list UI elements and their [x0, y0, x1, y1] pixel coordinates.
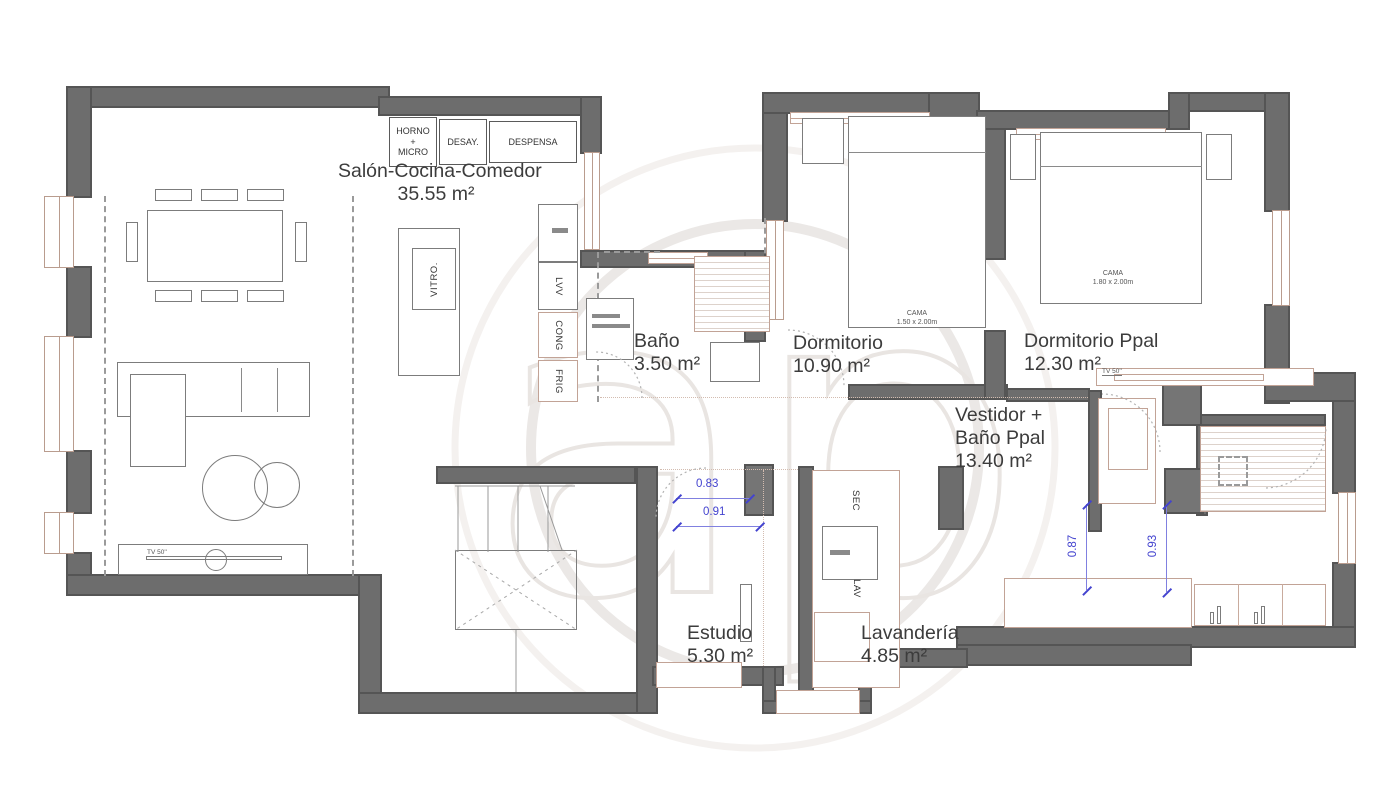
room-label-lavanderia: Lavandería4.85 m²: [861, 622, 959, 668]
window: [44, 336, 74, 452]
wall-segment: [956, 644, 1192, 666]
threshold: [776, 690, 860, 714]
room-label-estudio: Estudio5.30 m²: [687, 622, 753, 668]
vanity-faucet: [592, 314, 620, 318]
wall-column: [1164, 468, 1204, 514]
dimension-label: 0.93: [1147, 535, 1159, 557]
tv-console-leg: [205, 549, 227, 571]
corridor-guide-line: [600, 397, 1088, 398]
stair-landing: [455, 550, 577, 630]
dimension-label: 0.91: [703, 506, 725, 518]
dining-table: [147, 210, 283, 282]
dimension-line: [1086, 504, 1087, 590]
dimension-label: 0.87: [1067, 535, 1079, 557]
dishwasher: LVV: [538, 262, 578, 310]
window: [584, 152, 600, 250]
dimension-line: [676, 526, 760, 527]
closet-divider: [1282, 584, 1283, 626]
bed-size-label: CAMA1.50 x 2.00m: [862, 310, 972, 328]
guide-line: [352, 196, 354, 576]
guide-line: [104, 196, 106, 576]
sofa-cushion-line: [241, 368, 242, 412]
wall-segment: [580, 96, 602, 154]
bed-pillow-line: [1040, 166, 1202, 167]
fridge: FRIG: [538, 360, 578, 402]
window: [1272, 210, 1290, 306]
sink-faucet: [552, 228, 568, 233]
wall-segment: [1196, 414, 1326, 426]
dining-chair: [247, 290, 284, 302]
wall-column: [744, 464, 774, 516]
wall-segment: [66, 86, 92, 198]
dining-chair: [247, 189, 284, 201]
sofa-chaise: [130, 374, 186, 467]
room-label-vestidor: Vestidor + Baño Ppal 13.40 m²: [955, 404, 1045, 473]
bed-size-label: CAMA1.80 x 2.00m: [1058, 270, 1168, 288]
tv-label: TV 50'': [147, 549, 167, 557]
wall-segment: [66, 266, 92, 338]
wardrobe-inner: [1108, 408, 1148, 470]
closet-handle: [1210, 612, 1214, 624]
dimension-label: 0.83: [696, 478, 718, 490]
wall-segment: [984, 330, 1006, 400]
floor-plan: ap: [0, 0, 1400, 788]
wall-segment: [66, 86, 390, 108]
entry-door-dashed: [604, 251, 660, 253]
washer-handle: [830, 550, 850, 555]
pantry-cabinet: DESPENSA: [489, 121, 577, 163]
wall-segment: [1168, 92, 1190, 130]
wall-segment: [66, 450, 92, 514]
vanity-faucet: [592, 324, 630, 328]
bed-pillow-line: [848, 152, 986, 153]
room-label-dormitorio-ppal: Dormitorio Ppal12.30 m²: [1024, 330, 1158, 376]
window: [44, 196, 74, 268]
dimension-line: [1166, 504, 1167, 592]
nightstand: [802, 118, 844, 164]
room-label-dormitorio: Dormitorio10.90 m²: [793, 332, 883, 378]
toilet: [710, 342, 760, 382]
wall-segment: [1332, 400, 1356, 494]
dryer-label: SEC: [812, 478, 900, 522]
dining-chair: [155, 290, 192, 302]
dining-chair: [295, 222, 307, 262]
kitchen-sink-cabinet: [538, 204, 578, 262]
closet-handle: [1261, 606, 1265, 624]
corridor-guide-line: [660, 469, 798, 470]
window: [1338, 492, 1356, 564]
freezer: CONG: [538, 312, 578, 358]
dining-chair: [126, 222, 138, 262]
breakfast-cabinet: DESAY.: [439, 119, 487, 165]
room-label-salon: Salón-Cocina-Comedor35.55 m²: [338, 160, 534, 206]
dimension-line: [676, 498, 750, 499]
wall-segment: [358, 692, 658, 714]
dining-chair: [201, 189, 238, 201]
wall-segment: [66, 574, 380, 596]
window: [44, 512, 74, 554]
shower-tray: [694, 256, 770, 332]
coffee-table: [254, 462, 300, 508]
dining-chair: [201, 290, 238, 302]
closet-handle: [1217, 606, 1221, 624]
wall-segment: [436, 466, 636, 484]
corridor-guide-line: [763, 470, 764, 666]
sideboard: [1004, 578, 1192, 628]
wall-segment: [1006, 388, 1090, 402]
wall-segment: [938, 466, 964, 530]
bathroom-vanity: [586, 298, 634, 360]
shower-drain: [1218, 456, 1248, 486]
washer-label: LAV: [812, 566, 900, 610]
sofa-cushion-line: [277, 368, 278, 412]
dining-chair: [155, 189, 192, 201]
closet-handle: [1254, 612, 1258, 624]
wall-segment: [976, 110, 1190, 130]
induction-hob: VITRO.: [412, 248, 456, 310]
bed: [848, 116, 986, 328]
wall-segment: [378, 96, 602, 116]
wall-segment: [1264, 92, 1290, 212]
room-label-bano: Baño3.50 m²: [634, 330, 700, 376]
closet-divider: [1238, 584, 1239, 626]
wall-segment: [762, 92, 944, 114]
wall-segment: [984, 128, 1006, 260]
nightstand: [1206, 134, 1232, 180]
nightstand: [1010, 134, 1036, 180]
